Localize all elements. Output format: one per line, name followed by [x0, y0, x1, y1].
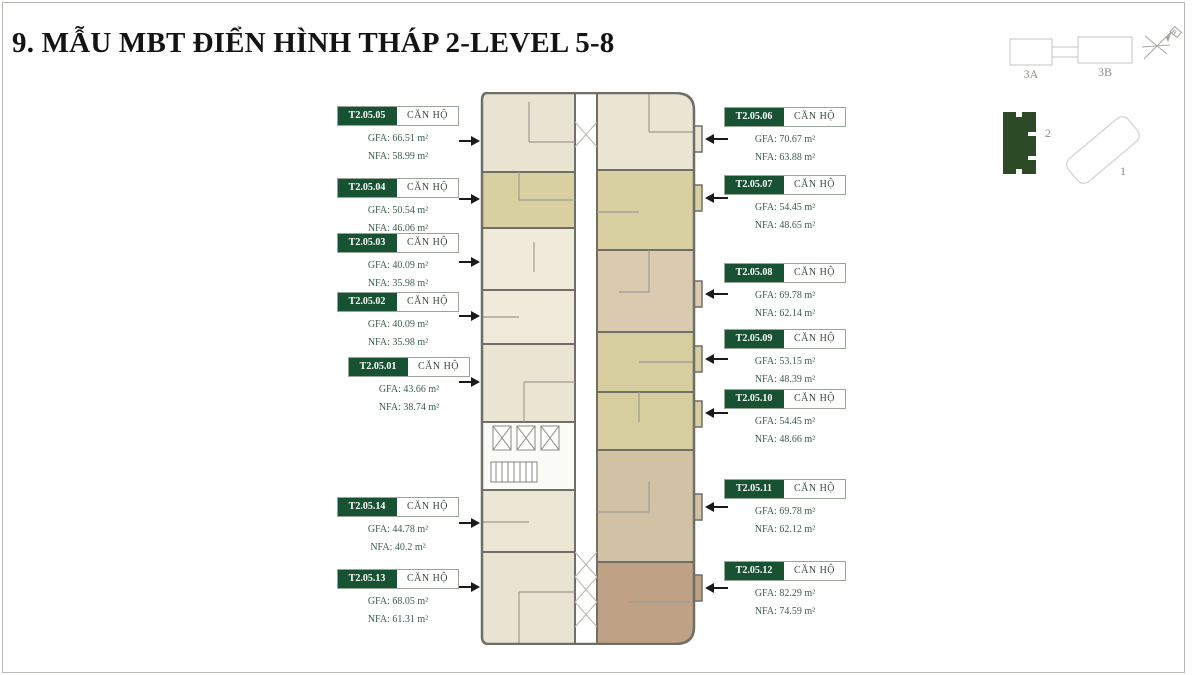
pointer-arrow — [459, 586, 472, 588]
unit-type: CĂN HỘ — [397, 570, 458, 588]
pointer-arrow — [713, 506, 728, 508]
block-3a-shape — [1010, 39, 1052, 65]
tower-1-label: 1 — [1120, 164, 1126, 178]
unit-gfa: GFA: 54.45 m² — [724, 416, 846, 428]
unit-type: CĂN HỘ — [397, 234, 458, 252]
unit-code: T2.05.08 — [725, 264, 784, 282]
unit-nfa: NFA: 38.74 m² — [348, 402, 470, 414]
tower-1-shape — [1063, 113, 1142, 186]
unit-type: CĂN HỘ — [784, 264, 845, 282]
unit-tag: T2.05.10 CĂN HỘ — [724, 389, 846, 409]
unit-label-t2-05-08: T2.05.08 CĂN HỘ GFA: 69.78 m² NFA: 62.14… — [724, 263, 846, 320]
unit-code: T2.05.03 — [338, 234, 397, 252]
compass-label: B — [1169, 28, 1178, 37]
unit-tag: T2.05.06 CĂN HỘ — [724, 107, 846, 127]
unit-nfa: NFA: 62.14 m² — [724, 308, 846, 320]
unit-nfa: NFA: 35.98 m² — [337, 337, 459, 349]
unit-code: T2.05.10 — [725, 390, 784, 408]
compass-icon: B — [1142, 26, 1181, 59]
unit-tag: T2.05.04 CĂN HỘ — [337, 178, 459, 198]
unit-type: CĂN HỘ — [397, 293, 458, 311]
unit-code: T2.05.11 — [725, 480, 784, 498]
pointer-arrow — [459, 522, 472, 524]
unit-code: T2.05.09 — [725, 330, 784, 348]
unit-tag: T2.05.13 CĂN HỘ — [337, 569, 459, 589]
block-3b-shape — [1078, 37, 1132, 63]
block-3b-label: 3B — [1098, 65, 1112, 79]
unit-type: CĂN HỘ — [397, 179, 458, 197]
pointer-arrow — [459, 261, 472, 263]
unit-gfa: GFA: 70.67 m² — [724, 134, 846, 146]
unit-gfa: GFA: 43.66 m² — [348, 384, 470, 396]
unit-gfa: GFA: 66.51 m² — [337, 133, 459, 145]
block-3a-label: 3A — [1024, 67, 1039, 81]
unit-label-t2-05-13: T2.05.13 CĂN HỘ GFA: 68.05 m² NFA: 61.31… — [337, 569, 459, 626]
unit-tag: T2.05.12 CĂN HỘ — [724, 561, 846, 581]
unit-tag: T2.05.02 CĂN HỘ — [337, 292, 459, 312]
unit-type: CĂN HỘ — [784, 390, 845, 408]
unit-gfa: GFA: 69.78 m² — [724, 290, 846, 302]
unit-gfa: GFA: 53.15 m² — [724, 356, 846, 368]
pointer-arrow — [459, 315, 472, 317]
tower-2-shape — [1003, 111, 1037, 175]
unit-tag: T2.05.09 CĂN HỘ — [724, 329, 846, 349]
plan-left-units — [482, 93, 575, 644]
pointer-arrow — [713, 412, 728, 414]
unit-code: T2.05.01 — [349, 358, 408, 376]
plan-corridor — [575, 93, 597, 644]
unit-label-t2-05-14: T2.05.14 CĂN HỘ GFA: 44.78 m² NFA: 40.2 … — [337, 497, 459, 554]
unit-nfa: NFA: 40.2 m² — [337, 542, 459, 554]
unit-label-t2-05-07: T2.05.07 CĂN HỘ GFA: 54.45 m² NFA: 48.65… — [724, 175, 846, 232]
unit-code: T2.05.04 — [338, 179, 397, 197]
unit-label-t2-05-10: T2.05.10 CĂN HỘ GFA: 54.45 m² NFA: 48.66… — [724, 389, 846, 446]
unit-gfa: GFA: 40.09 m² — [337, 260, 459, 272]
page-title: 9. MẪU MBT ĐIỂN HÌNH THÁP 2-LEVEL 5-8 — [12, 27, 615, 60]
unit-code: T2.05.12 — [725, 562, 784, 580]
unit-tag: T2.05.07 CĂN HỘ — [724, 175, 846, 195]
unit-tag: T2.05.11 CĂN HỘ — [724, 479, 846, 499]
unit-type: CĂN HỘ — [784, 480, 845, 498]
unit-gfa: GFA: 82.29 m² — [724, 588, 846, 600]
unit-code: T2.05.02 — [338, 293, 397, 311]
unit-code: T2.05.05 — [338, 107, 397, 125]
unit-type: CĂN HỘ — [397, 107, 458, 125]
block-connector — [1052, 47, 1078, 57]
pointer-arrow — [459, 198, 472, 200]
unit-nfa: NFA: 48.39 m² — [724, 374, 846, 386]
unit-nfa: NFA: 35.98 m² — [337, 278, 459, 290]
unit-nfa: NFA: 61.31 m² — [337, 614, 459, 626]
pointer-arrow — [713, 587, 728, 589]
unit-gfa: GFA: 44.78 m² — [337, 524, 459, 536]
unit-type: CĂN HỘ — [784, 108, 845, 126]
unit-label-t2-05-09: T2.05.09 CĂN HỘ GFA: 53.15 m² NFA: 48.39… — [724, 329, 846, 386]
stairs — [491, 462, 537, 482]
unit-nfa: NFA: 74.59 m² — [724, 606, 846, 618]
unit-gfa: GFA: 54.45 m² — [724, 202, 846, 214]
floor-plan — [479, 92, 703, 645]
unit-label-t2-05-05: T2.05.05 CĂN HỘ GFA: 66.51 m² NFA: 58.99… — [337, 106, 459, 163]
unit-type: CĂN HỘ — [784, 176, 845, 194]
pointer-arrow — [713, 358, 728, 360]
pointer-arrow — [713, 138, 728, 140]
site-plan-key: 3A 3B B 2 1 — [1000, 25, 1190, 190]
tower-2-label: 2 — [1045, 126, 1051, 140]
unit-code: T2.05.06 — [725, 108, 784, 126]
unit-nfa: NFA: 48.65 m² — [724, 220, 846, 232]
unit-nfa: NFA: 63.88 m² — [724, 152, 846, 164]
unit-gfa: GFA: 69.78 m² — [724, 506, 846, 518]
unit-label-t2-05-03: T2.05.03 CĂN HỘ GFA: 40.09 m² NFA: 35.98… — [337, 233, 459, 290]
unit-nfa: NFA: 62.12 m² — [724, 524, 846, 536]
unit-nfa: NFA: 48.66 m² — [724, 434, 846, 446]
unit-nfa: NFA: 58.99 m² — [337, 151, 459, 163]
unit-tag: T2.05.01 CĂN HỘ — [348, 357, 470, 377]
unit-tag: T2.05.03 CĂN HỘ — [337, 233, 459, 253]
pointer-arrow — [713, 293, 728, 295]
unit-tag: T2.05.14 CĂN HỘ — [337, 497, 459, 517]
unit-label-t2-05-06: T2.05.06 CĂN HỘ GFA: 70.67 m² NFA: 63.88… — [724, 107, 846, 164]
unit-label-t2-05-04: T2.05.04 CĂN HỘ GFA: 50.54 m² NFA: 46.06… — [337, 178, 459, 235]
pointer-arrow — [459, 140, 472, 142]
pointer-arrow — [713, 197, 728, 199]
elevator-core — [493, 426, 559, 450]
unit-type: CĂN HỘ — [397, 498, 458, 516]
unit-type: CĂN HỘ — [784, 330, 845, 348]
pointer-arrow — [459, 381, 472, 383]
unit-gfa: GFA: 68.05 m² — [337, 596, 459, 608]
unit-label-t2-05-02: T2.05.02 CĂN HỘ GFA: 40.09 m² NFA: 35.98… — [337, 292, 459, 349]
unit-code: T2.05.13 — [338, 570, 397, 588]
unit-code: T2.05.14 — [338, 498, 397, 516]
unit-gfa: GFA: 50.54 m² — [337, 205, 459, 217]
unit-label-t2-05-11: T2.05.11 CĂN HỘ GFA: 69.78 m² NFA: 62.12… — [724, 479, 846, 536]
unit-code: T2.05.07 — [725, 176, 784, 194]
unit-tag: T2.05.08 CĂN HỘ — [724, 263, 846, 283]
unit-gfa: GFA: 40.09 m² — [337, 319, 459, 331]
unit-type: CĂN HỘ — [408, 358, 469, 376]
unit-tag: T2.05.05 CĂN HỘ — [337, 106, 459, 126]
unit-type: CĂN HỘ — [784, 562, 845, 580]
unit-label-t2-05-12: T2.05.12 CĂN HỘ GFA: 82.29 m² NFA: 74.59… — [724, 561, 846, 618]
unit-label-t2-05-01: T2.05.01 CĂN HỘ GFA: 43.66 m² NFA: 38.74… — [348, 357, 470, 414]
